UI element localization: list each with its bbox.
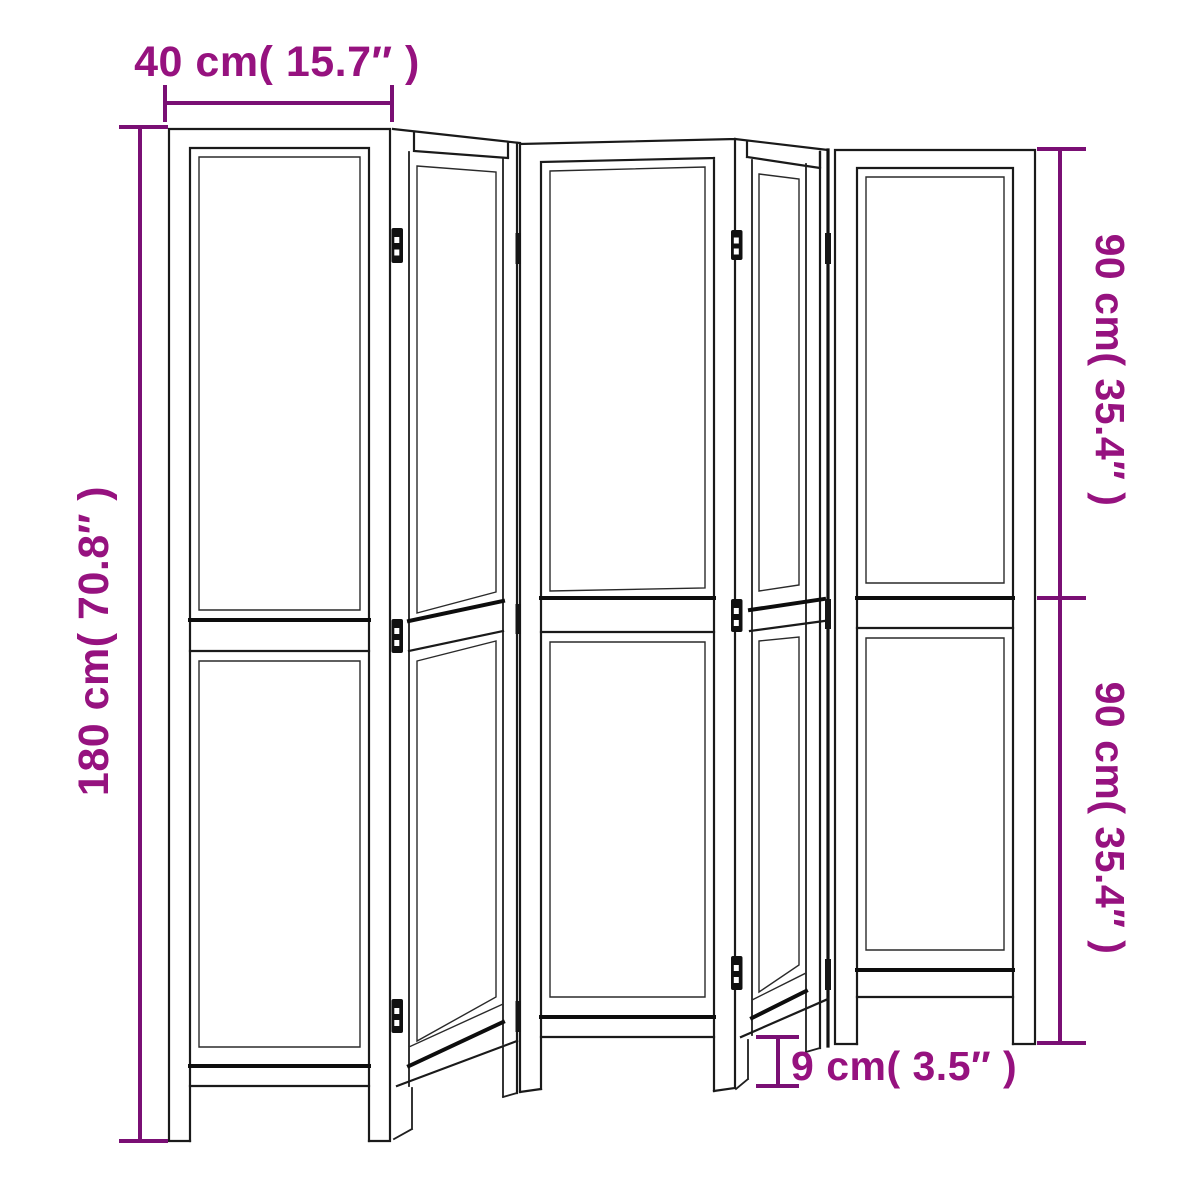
diagram-canvas: 40 cm( 15.7″ ) 180 cm( 70.8″ ) 90 cm( 35… [0, 0, 1200, 1200]
panel-4-angled [735, 139, 828, 1089]
dim-label-leg-height: 9 cm( 3.5″ ) [791, 1043, 1017, 1089]
dim-label-lower-section-height: 90 cm( 35.4″ ) [1087, 682, 1133, 955]
room-divider-drawing [169, 129, 1035, 1141]
panel-1 [169, 129, 390, 1141]
dim-label-upper-section-height: 90 cm( 35.4″ ) [1087, 234, 1133, 507]
hinge-plates-joint-3-4 [731, 230, 743, 990]
hinge-plates-joint-1-2 [392, 228, 404, 1033]
panel-2-angled [393, 129, 520, 1139]
dim-label-total-height: 180 cm( 70.8″ ) [70, 486, 118, 796]
dim-label-panel-width: 40 cm( 15.7″ ) [134, 38, 420, 86]
room-divider-dimension-diagram: 40 cm( 15.7″ ) 180 cm( 70.8″ ) 90 cm( 35… [0, 0, 1200, 1200]
panel-5 [835, 150, 1035, 1044]
panel-3 [520, 139, 735, 1092]
dim-leg-height: 9 cm( 3.5″ ) [756, 1037, 1017, 1089]
dim-section-heights: 90 cm( 35.4″ ) 90 cm( 35.4″ ) [1037, 149, 1133, 1043]
dim-panel-width: 40 cm( 15.7″ ) [134, 38, 420, 122]
dim-total-height: 180 cm( 70.8″ ) [70, 127, 168, 1141]
